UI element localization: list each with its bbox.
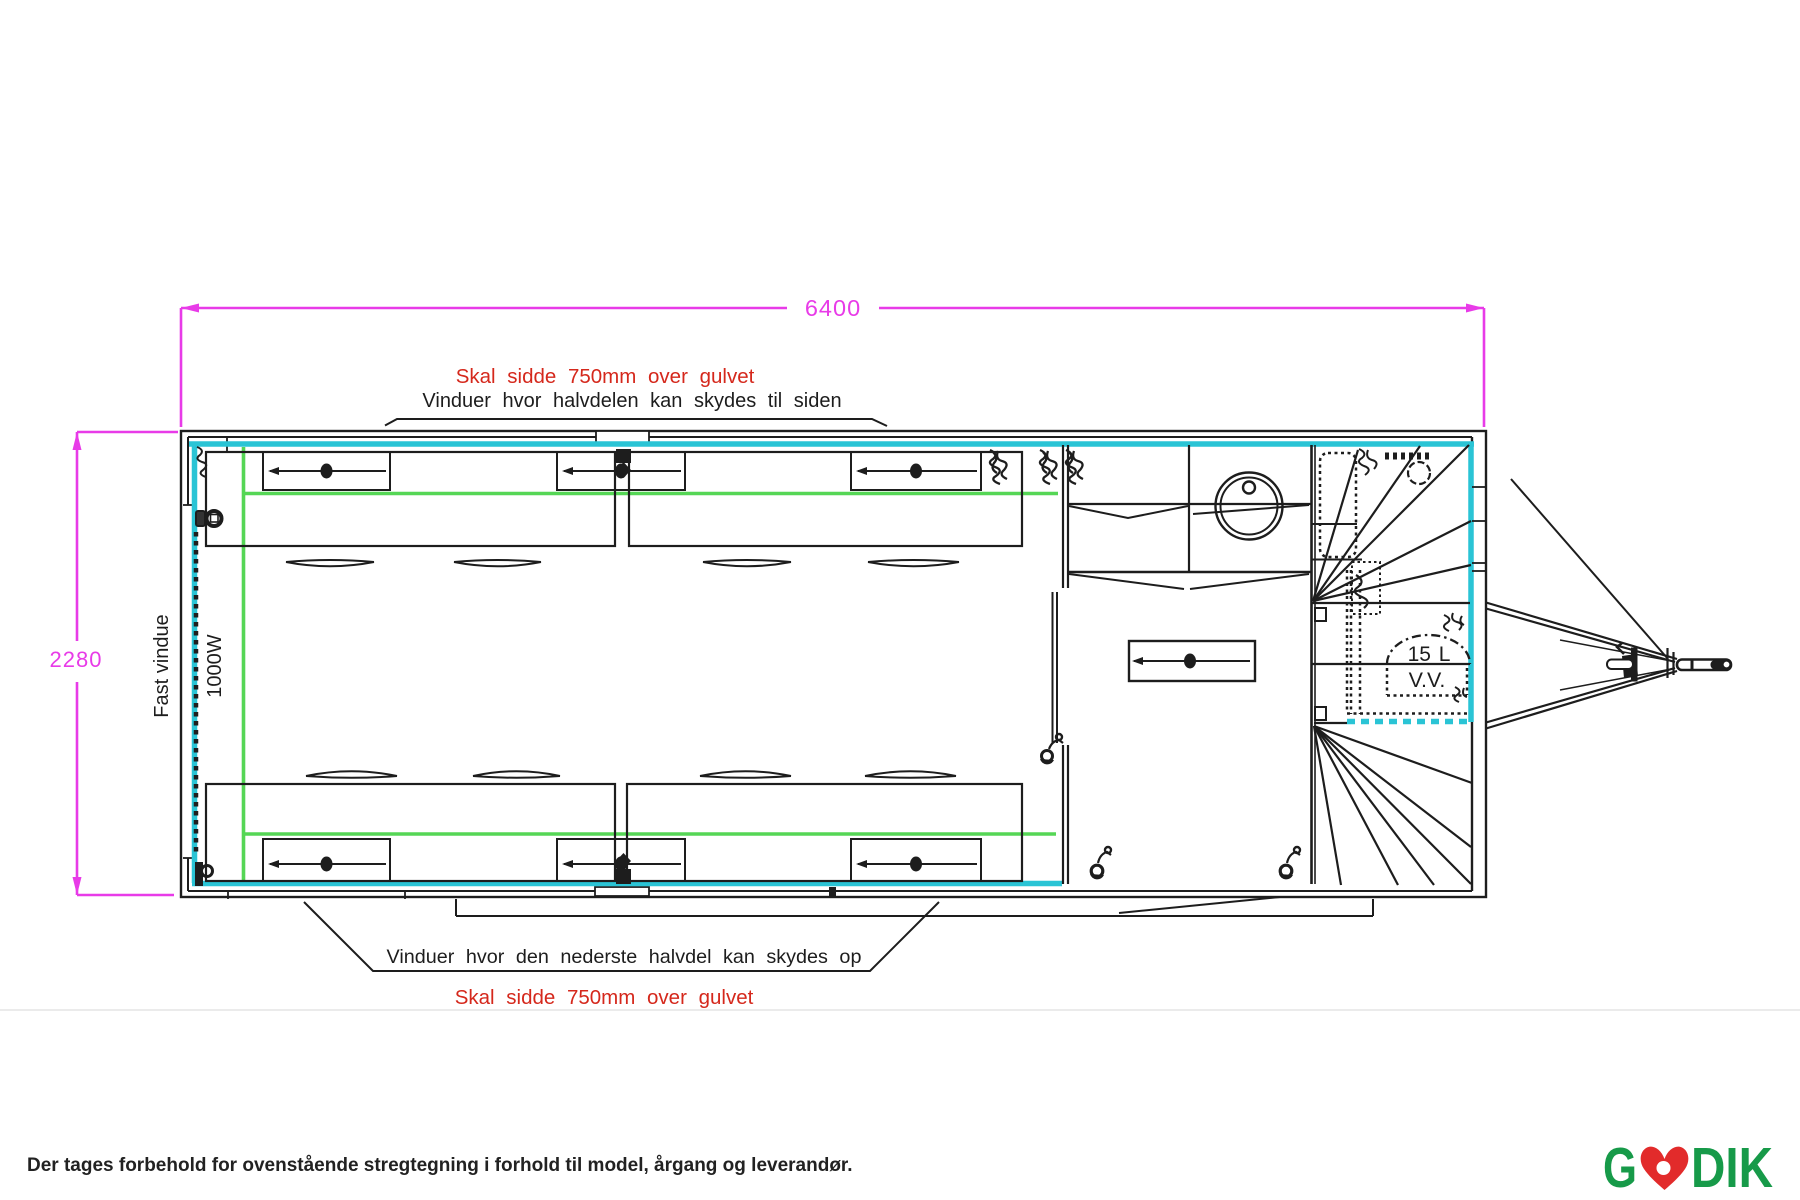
svg-text:Fast vindue: Fast vindue — [151, 614, 173, 717]
svg-text:6400: 6400 — [805, 295, 861, 321]
svg-text:Der tages forbehold for ovenst: Der tages forbehold for ovenstående stre… — [27, 1155, 853, 1176]
svg-text:DIK: DIK — [1691, 1136, 1773, 1200]
svg-text:G: G — [1603, 1136, 1637, 1200]
svg-text:15 L: 15 L — [1408, 643, 1451, 666]
svg-text:Vinduer hvor halvdelen kan sky: Vinduer hvor halvdelen kan skydes til si… — [422, 390, 841, 412]
svg-text:V.V.: V.V. — [1409, 668, 1446, 692]
svg-text:2280: 2280 — [50, 647, 103, 672]
svg-text:Skal sidde 750mm over gulvet: Skal sidde 750mm over gulvet — [456, 365, 755, 388]
svg-text:1000W: 1000W — [204, 634, 226, 697]
svg-text:Skal sidde 750mm over gulvet: Skal sidde 750mm over gulvet — [455, 986, 754, 1009]
svg-text:Vinduer hvor den nederste halv: Vinduer hvor den nederste halvdel kan sk… — [387, 946, 862, 968]
